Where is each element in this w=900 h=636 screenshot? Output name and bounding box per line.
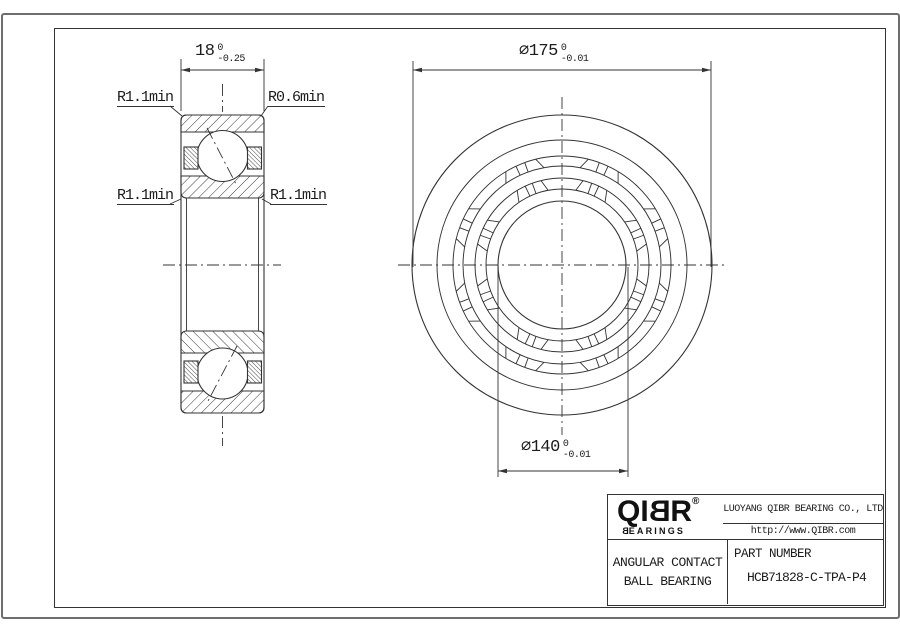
logo-wordmark: QIBR ® (617, 498, 723, 526)
cage-top-left (184, 147, 198, 169)
dimension-od-tol-lower: -0.01 (561, 54, 589, 65)
leader-r-top-right (261, 106, 268, 116)
dimension-width-value: 18 (195, 42, 214, 62)
cage-bottom-left (184, 361, 198, 383)
arrow (619, 469, 628, 474)
front-view (398, 97, 727, 435)
dimension-od-value: ⌀175 (519, 42, 558, 62)
product-type-line2: BALL BEARING (624, 572, 712, 591)
radius-label-top-right: R0.6min (268, 91, 325, 107)
outer-ring-top-section (181, 115, 264, 132)
dimension-bore-tol-upper: 0 (563, 439, 569, 450)
product-type: ANGULAR CONTACT BALL BEARING (608, 540, 727, 604)
part-number-label: PART NUMBER (734, 547, 879, 561)
ball-top (197, 131, 248, 182)
dimension-width-tol-upper: 0 (217, 43, 223, 54)
registered-trademark-icon: ® (692, 497, 699, 507)
arrow (255, 68, 264, 73)
arrow (181, 68, 190, 73)
arrow (413, 68, 422, 73)
logo-part3: R (670, 498, 692, 526)
title-block-header-row: QIBR ® BEARINGS LUOYANG QIBR BEARING CO.… (608, 495, 883, 539)
company-website: http://www.QIBR.com (723, 524, 883, 539)
dimension-outer-diameter: ⌀175 0 -0.01 (519, 42, 588, 65)
dimension-width-tol-lower: -0.25 (217, 54, 245, 65)
section-view (163, 84, 281, 446)
arrow (702, 68, 711, 73)
logo-part2: B (649, 498, 671, 526)
drawing-sheet: 18 0 -0.25 ⌀175 0 -0.01 ⌀140 0 -0.01 R1.… (0, 0, 900, 636)
radius-label-mid-left: R1.1min (117, 189, 174, 205)
company-info: LUOYANG QIBR BEARING CO., LTD http://www… (723, 495, 883, 539)
dimension-od-tol-upper: 0 (561, 43, 567, 54)
dimension-bore-value: ⌀140 (521, 438, 560, 458)
dimension-bore-diameter: ⌀140 0 -0.01 (521, 438, 590, 461)
dimension-width: 18 0 -0.25 (195, 42, 245, 65)
title-block: QIBR ® BEARINGS LUOYANG QIBR BEARING CO.… (607, 494, 884, 606)
cage-top-right (248, 147, 262, 169)
product-type-line1: ANGULAR CONTACT (613, 553, 723, 572)
dimension-bore-tol-lower: -0.01 (563, 450, 591, 461)
company-logo: QIBR ® BEARINGS (608, 495, 723, 539)
part-number-value: HCB71828-C-TPA-P4 (734, 570, 879, 585)
leader-r-top-left (170, 106, 182, 116)
radius-label-top-left: R1.1min (117, 91, 174, 107)
radius-label-mid-right: R1.1min (270, 189, 327, 205)
company-name: LUOYANG QIBR BEARING CO., LTD (723, 495, 883, 524)
title-block-detail-row: ANGULAR CONTACT BALL BEARING PART NUMBER… (608, 539, 883, 604)
part-number-cell: PART NUMBER HCB71828-C-TPA-P4 (727, 540, 883, 604)
cage-bottom-right (248, 361, 262, 383)
arrow (498, 469, 507, 474)
logo-part1: QI (617, 498, 649, 526)
